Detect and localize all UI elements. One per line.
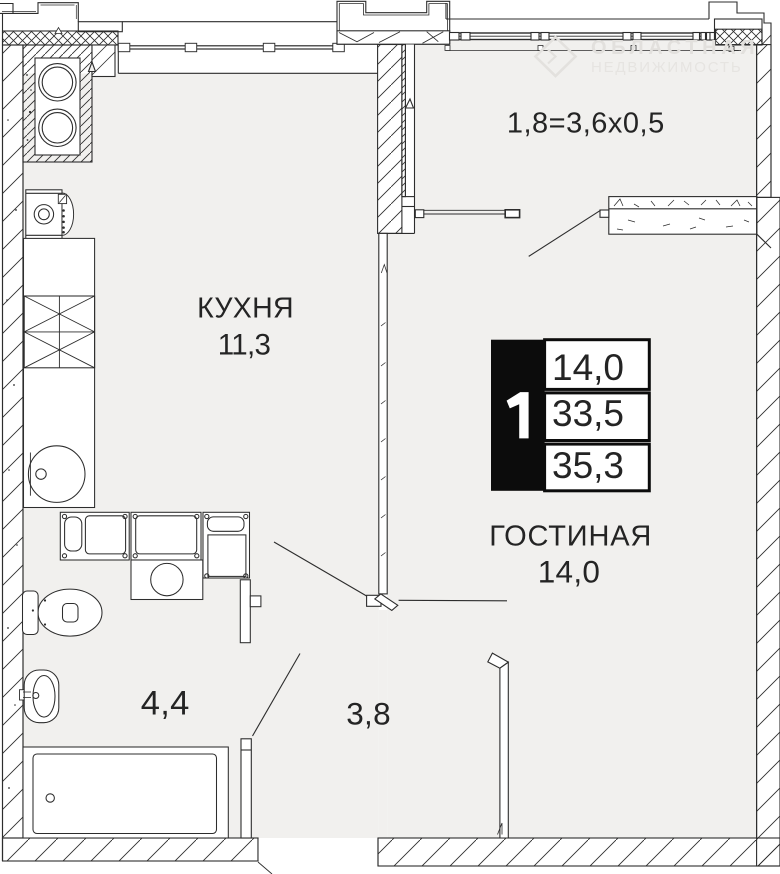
svg-text:35,3: 35,3 [552, 445, 624, 486]
svg-text:33,5: 33,5 [552, 393, 624, 434]
svg-text:ОБЛАСТНАЯ: ОБЛАСТНАЯ [591, 37, 759, 59]
svg-text:14,0: 14,0 [552, 347, 624, 388]
svg-text:1,8=3,6х0,5: 1,8=3,6х0,5 [507, 108, 665, 140]
svg-text:3,8: 3,8 [346, 696, 391, 732]
svg-text:КУХНЯ: КУХНЯ [197, 293, 294, 325]
svg-text:НЕДВИЖИМОСТЬ: НЕДВИЖИМОСТЬ [591, 59, 743, 76]
svg-text:14,0: 14,0 [538, 554, 601, 590]
svg-text:11,3: 11,3 [218, 329, 271, 362]
svg-text:4,4: 4,4 [141, 685, 190, 723]
svg-text:ГОСТИНАЯ: ГОСТИНАЯ [489, 520, 652, 552]
